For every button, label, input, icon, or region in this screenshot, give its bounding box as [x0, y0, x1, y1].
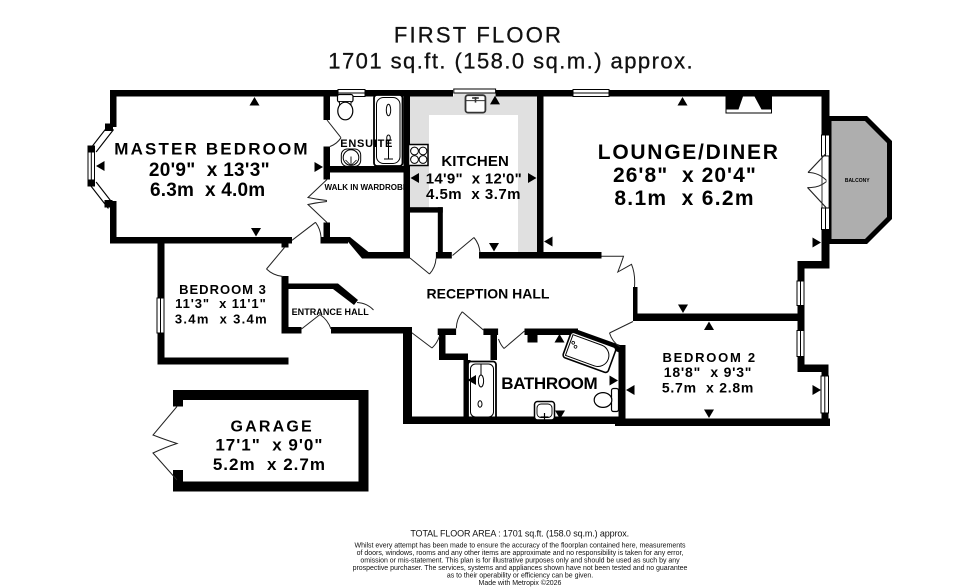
svg-text:BEDROOM 2: BEDROOM 2 [663, 350, 757, 365]
svg-text:8.1m x 6.2m: 8.1m x 6.2m [614, 187, 755, 210]
svg-text:TOTAL FLOOR AREA : 1701 sq.ft.: TOTAL FLOOR AREA : 1701 sq.ft. (158.0 sq… [410, 529, 629, 539]
svg-text:20'9" x 13'3": 20'9" x 13'3" [149, 160, 270, 181]
svg-text:18'8" x 9'3": 18'8" x 9'3" [664, 364, 752, 380]
svg-text:5.7m x 2.8m: 5.7m x 2.8m [662, 380, 754, 396]
svg-text:RECEPTION HALL: RECEPTION HALL [427, 285, 550, 301]
svg-text:BEDROOM 3: BEDROOM 3 [179, 282, 267, 297]
svg-text:6.3m x 4.0m: 6.3m x 4.0m [150, 180, 265, 201]
svg-text:4.5m x 3.7m: 4.5m x 3.7m [426, 186, 521, 203]
svg-text:1701 sq.ft. (158.0 sq.m.) appr: 1701 sq.ft. (158.0 sq.m.) approx. [328, 49, 694, 74]
svg-text:3.4m x 3.4m: 3.4m x 3.4m [175, 311, 268, 326]
svg-text:prospective purchaser. The ser: prospective purchaser. The services, sys… [353, 565, 688, 572]
svg-text:FIRST FLOOR: FIRST FLOOR [394, 22, 563, 47]
svg-text:as to their operability or eff: as to their operability or efficiency ca… [447, 573, 593, 580]
svg-text:17'1" x 9'0": 17'1" x 9'0" [215, 436, 323, 455]
svg-text:of doors, windows, rooms and a: of doors, windows, rooms and any other i… [357, 550, 684, 557]
svg-text:ENTRANCE HALL: ENTRANCE HALL [292, 307, 370, 317]
svg-text:BALCONY: BALCONY [845, 178, 870, 184]
svg-text:omission or mis-statement. Thi: omission or mis-statement. This plan is … [360, 558, 680, 565]
svg-text:5.2m x 2.7m: 5.2m x 2.7m [213, 455, 326, 474]
svg-text:Whilst every attempt has been: Whilst every attempt has been made to en… [354, 543, 686, 550]
svg-text:BATHROOM: BATHROOM [501, 374, 597, 393]
svg-text:MASTER BEDROOM: MASTER BEDROOM [114, 140, 309, 159]
svg-text:11'3" x 11'1": 11'3" x 11'1" [175, 296, 267, 311]
svg-text:Made with Metropix ©2026: Made with Metropix ©2026 [479, 579, 562, 587]
svg-text:LOUNGE/DINER: LOUNGE/DINER [598, 141, 780, 164]
svg-text:GARAGE: GARAGE [230, 418, 313, 435]
svg-text:14'9" x 12'0": 14'9" x 12'0" [426, 170, 522, 187]
svg-text:KITCHEN: KITCHEN [441, 153, 509, 170]
svg-text:WALK IN WARDROBE: WALK IN WARDROBE [325, 183, 409, 192]
svg-text:26'8" x 20'4": 26'8" x 20'4" [613, 164, 757, 187]
svg-text:ENSUITE: ENSUITE [340, 138, 393, 150]
